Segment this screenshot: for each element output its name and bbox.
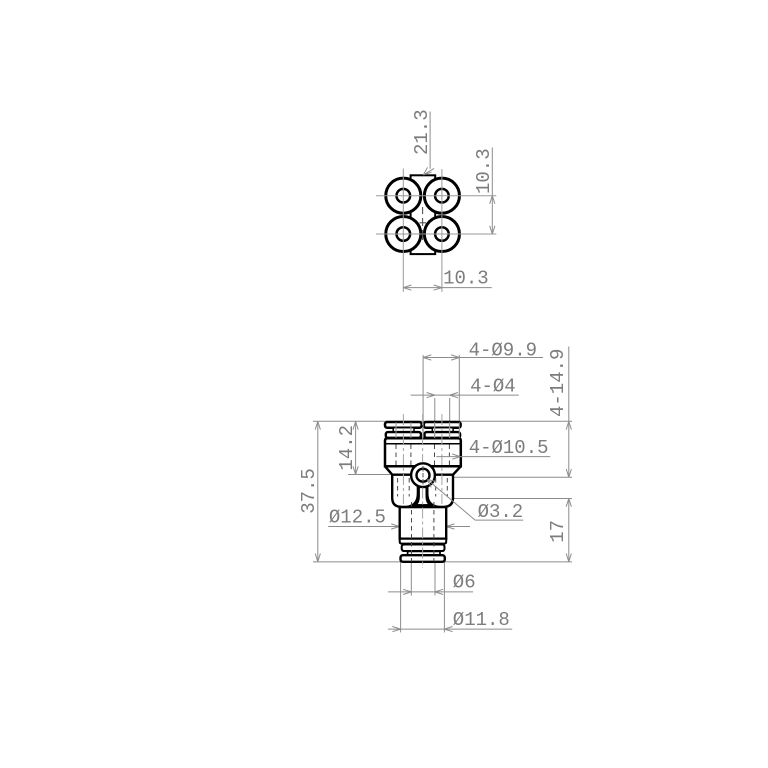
svg-text:10.3: 10.3 [473,148,495,194]
svg-text:Ø6: Ø6 [453,572,476,594]
svg-text:14.2: 14.2 [336,425,358,471]
svg-text:4-Ø9.9: 4-Ø9.9 [469,339,537,361]
svg-text:4-Ø10.5: 4-Ø10.5 [469,437,549,459]
svg-text:17: 17 [547,520,569,543]
svg-text:4-14.9: 4-14.9 [547,349,569,417]
svg-text:Ø12.5: Ø12.5 [329,507,386,529]
svg-text:4-Ø4: 4-Ø4 [470,375,516,397]
svg-text:Ø11.8: Ø11.8 [453,609,510,631]
svg-text:37.5: 37.5 [298,468,320,514]
svg-text:10.3: 10.3 [443,267,489,289]
svg-text:Ø3.2: Ø3.2 [478,501,524,523]
svg-text:21.3: 21.3 [411,109,433,155]
